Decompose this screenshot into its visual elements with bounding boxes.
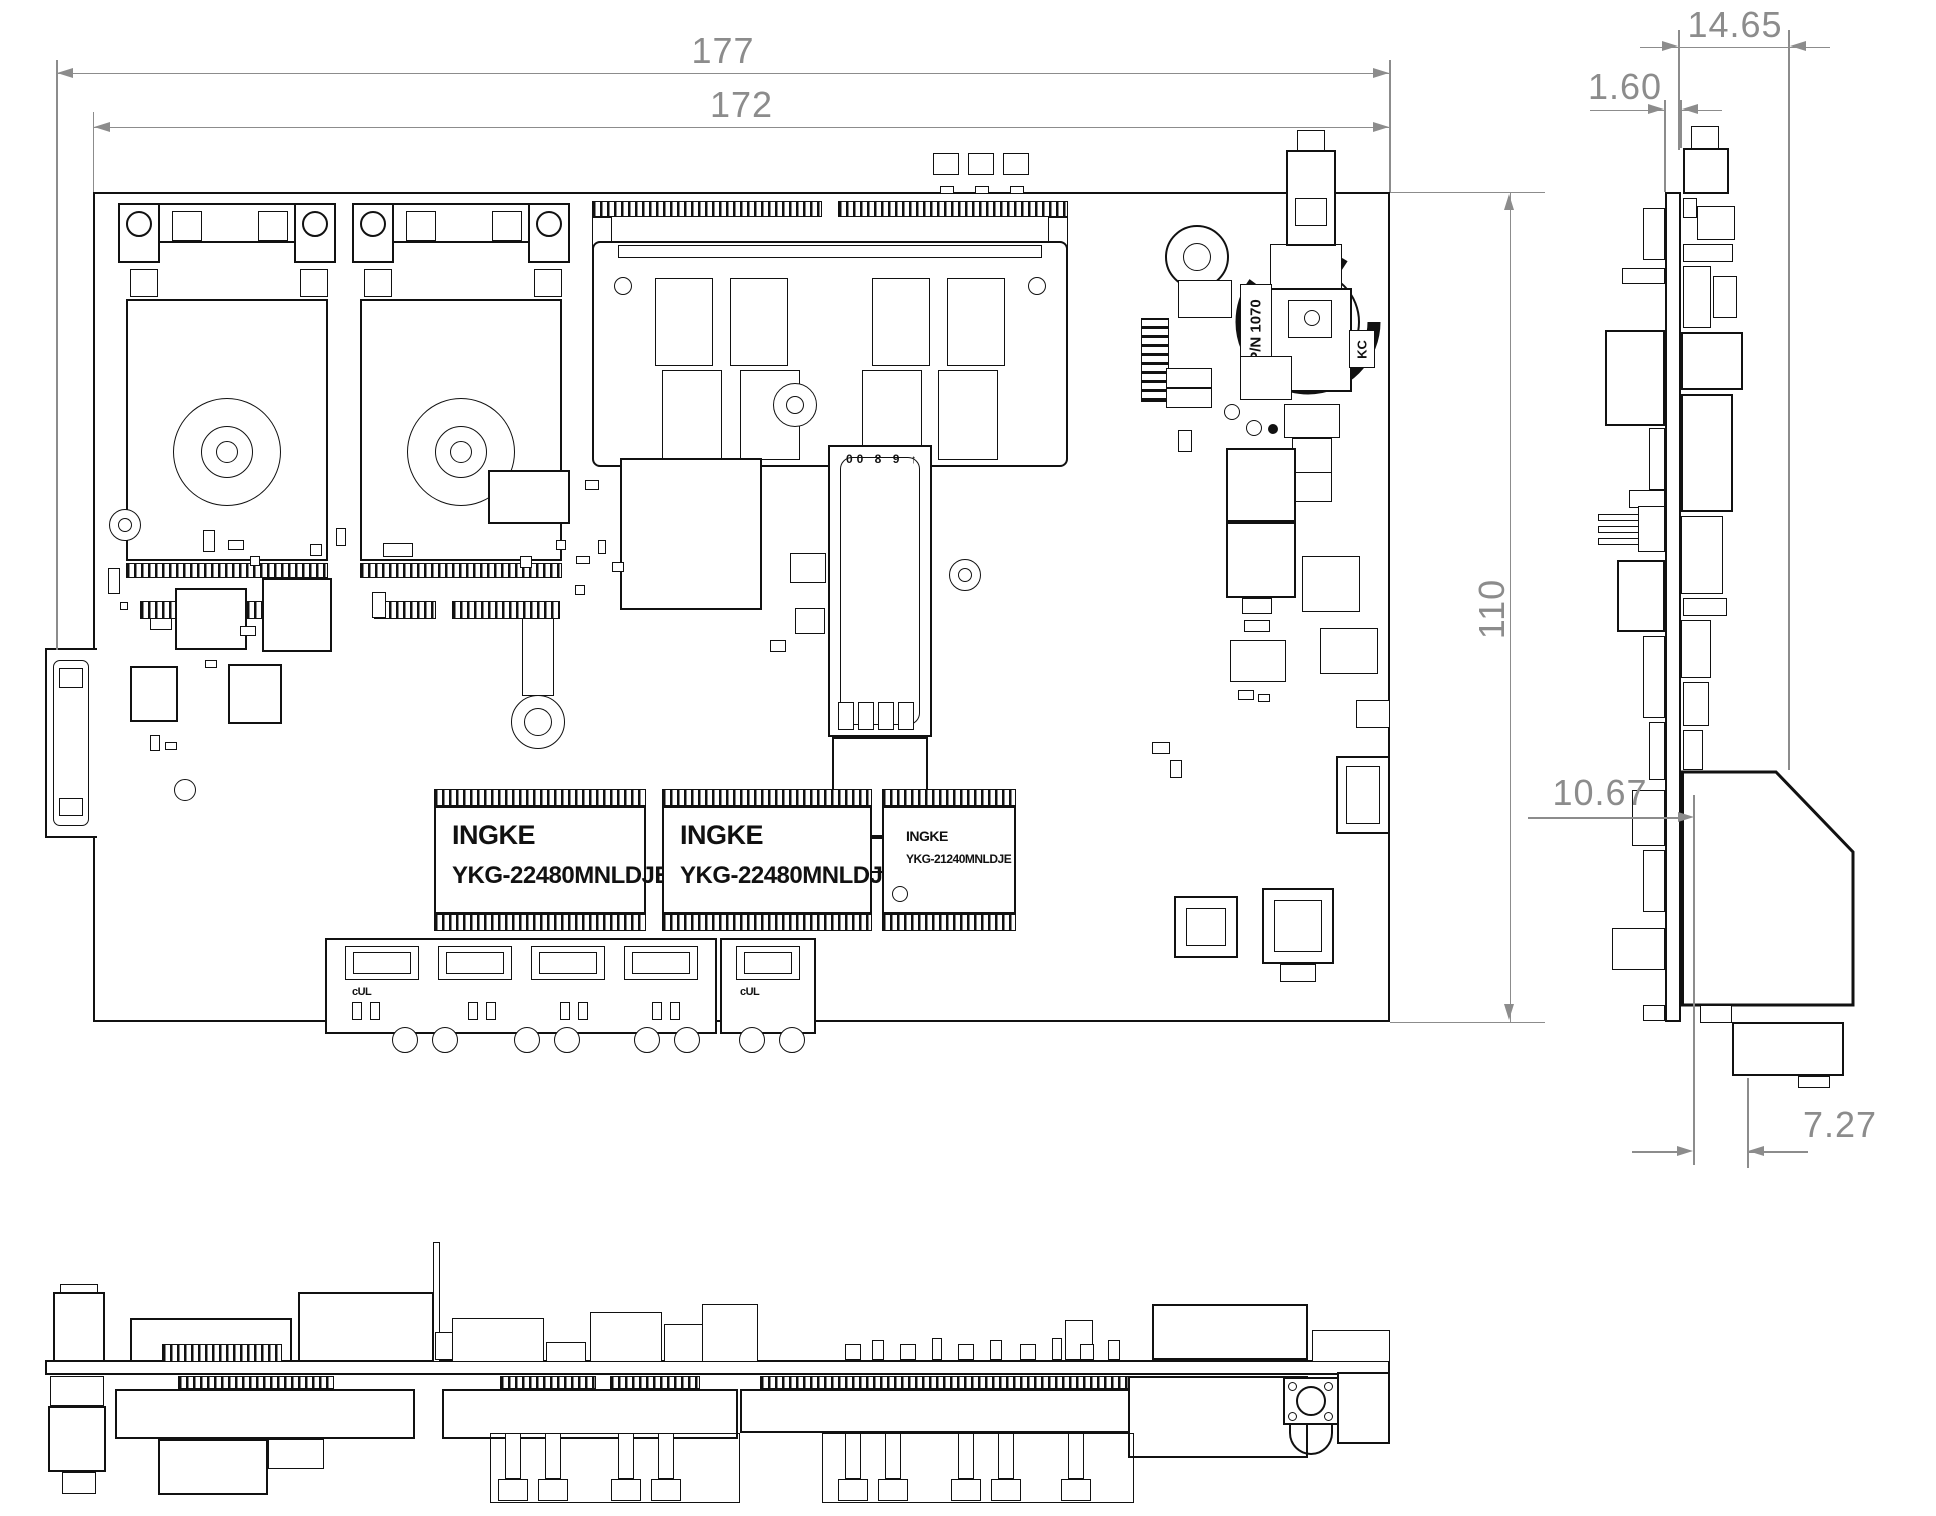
leg-foot [498,1479,528,1501]
audio-jack-side [1683,148,1729,194]
sodimm-pins [592,201,822,217]
component [205,660,217,668]
rj45-bay-inner [539,952,597,974]
mount-hole-core [958,568,972,582]
dim-label-172: 172 [93,84,1390,126]
sfp-latch [858,702,874,730]
component [1244,620,1270,632]
component [598,540,606,554]
component [268,1439,324,1469]
rf-ring-core [450,441,472,463]
leg [658,1433,674,1479]
pad [258,211,288,241]
component [228,664,282,724]
mini-connector-inner [1186,908,1226,946]
component [770,640,786,652]
leg [885,1433,901,1479]
dim-label-1465: 14.65 [1640,4,1830,46]
pin [370,1002,380,1020]
component [1108,1340,1120,1360]
pin [352,1002,362,1020]
battery-clip-foot [1292,438,1332,474]
component [1152,1304,1308,1360]
pin-row [434,789,646,806]
component [165,742,177,750]
screw-hole-icon [360,211,386,237]
pad [364,269,392,297]
component [1700,1005,1732,1023]
mount-foot [392,1027,418,1053]
component [203,530,215,552]
leg [958,1433,974,1479]
pin-row [434,914,646,931]
component [452,1318,544,1362]
connector-under [442,1389,738,1439]
component [958,1344,974,1360]
component [50,1376,104,1406]
component [1683,598,1727,616]
usb-inner [1346,766,1380,824]
ram-chip [872,278,930,366]
pin [578,1002,588,1020]
pin-row [162,1344,282,1362]
component [1798,1076,1830,1088]
component [310,544,322,556]
component [1649,428,1665,490]
arrow-icon [1504,1004,1514,1020]
dim-label-110: 110 [1471,549,1513,669]
mount-foot [432,1027,458,1053]
pin-row [126,563,328,578]
sfp-marking: 00 8 9 ↑ [846,452,921,466]
component [1683,682,1709,726]
rf-ring-core [216,441,238,463]
pin-row [662,789,872,806]
component [1010,186,1024,194]
ext-line [1693,795,1695,1165]
power-jack-pin [59,668,83,688]
arrow-icon [1504,194,1514,210]
sfp-cage-side [1681,770,1856,1008]
component [383,543,413,557]
component [1003,153,1029,175]
screw-icon [1324,1382,1333,1391]
ladder-connector [1141,318,1169,402]
component [53,1292,105,1362]
component [1643,850,1665,912]
ram-chip [655,278,713,366]
component [1356,700,1390,728]
pad [492,211,522,241]
leg [545,1433,561,1479]
ic-chip [175,588,247,650]
sodimm-side [1681,394,1733,512]
chip-part: YKG-22480MNLDJE [680,862,898,890]
component [1178,280,1232,318]
component [1683,730,1703,770]
component [1683,266,1711,328]
cert-mark: cUL [740,986,759,998]
pcb-edge-bar [45,1360,1390,1375]
component [1166,368,1212,388]
io-connector-inner [1274,900,1322,952]
audio-jack-hole [1296,1386,1326,1416]
ram-chip [730,278,788,366]
component [150,735,160,751]
power-module [1226,448,1296,522]
sfp-cage-inner [840,457,920,725]
pcb-cross-section [1665,192,1681,1022]
chip-brand: INGKE [452,820,535,851]
hole-icon [1224,404,1240,420]
rj45-bay-inner [353,952,411,974]
leg [505,1433,521,1479]
screw-hole-icon [302,211,328,237]
pad [406,211,436,241]
chip-brand: INGKE [680,820,763,851]
pin [486,1002,496,1020]
component [795,608,825,634]
component [108,568,120,594]
dim-label-1067: 10.67 [1520,772,1680,814]
mechanical-drawing: P/N 1070 KC [0,0,1936,1516]
power-jack-pin2 [59,798,83,816]
component [1605,330,1665,426]
component [933,153,959,175]
pin-row [882,789,1016,806]
arrow-icon [1748,1146,1764,1156]
leg-foot [538,1479,568,1501]
component [520,556,532,568]
pin [468,1002,478,1020]
component [298,1292,434,1362]
dim-label-160: 1.60 [1555,66,1695,108]
connector-under [158,1439,268,1495]
chip-part: YKG-22480MNLDJE [452,862,670,890]
component [228,540,244,550]
pin [670,1002,680,1020]
component [1258,694,1270,702]
mount-hole-core [786,396,804,414]
mount-hole-icon [174,779,196,801]
component [150,618,172,630]
component [1080,1344,1094,1360]
component [250,556,260,566]
component [1683,244,1733,262]
component [872,1340,884,1360]
component [1166,388,1212,408]
component [585,480,599,490]
ext-line [1788,30,1790,770]
component [968,153,994,175]
mount-foot [779,1027,805,1053]
pin-row [178,1376,334,1389]
leg [618,1433,634,1479]
component [1320,628,1378,674]
power-module [1226,522,1296,598]
battery-cert-label: KC [1355,333,1370,367]
leg-foot [991,1479,1021,1501]
component [1052,1338,1062,1360]
mount-hole-core [1183,243,1211,271]
ext-line [1664,100,1666,192]
pad [534,269,562,297]
component [1020,1344,1036,1360]
chip-brand: INGKE [906,828,948,844]
pin-row [610,1376,700,1389]
screw-icon [1324,1412,1333,1421]
pad [172,211,202,241]
cert-mark: cUL [352,986,371,998]
component [522,618,554,696]
leg-foot [1061,1479,1091,1501]
component [1302,556,1360,612]
mount-foot [634,1027,660,1053]
leg-foot [951,1479,981,1501]
screw-hole-icon [126,211,152,237]
component [372,592,386,618]
dim-label-177: 177 [56,30,1390,72]
leg-foot [878,1479,908,1501]
component [1178,430,1192,452]
audio-jack-side-nub [1691,126,1719,150]
sodimm-bar [618,245,1042,258]
mount-foot [554,1027,580,1053]
ic-chip [488,470,570,524]
component [1622,268,1665,284]
component [612,562,624,572]
pin-row [760,1376,1150,1389]
ext-line [56,60,58,650]
leg [1068,1433,1084,1479]
component [1280,964,1316,982]
cpu-chip [620,458,762,610]
pin [560,1002,570,1020]
latch-side [1612,928,1665,970]
component [932,1338,942,1360]
component [990,1340,1002,1360]
component [1681,620,1711,678]
leg [998,1433,1014,1479]
component [240,626,256,636]
dim-line-1067 [1528,817,1680,819]
component [556,540,566,550]
sfp-latch [878,702,894,730]
component [62,1472,96,1494]
dim-line-727 [1632,1151,1678,1153]
component [1238,690,1254,700]
component [1152,742,1170,754]
mount-foot [739,1027,765,1053]
mount-foot [514,1027,540,1053]
connector-under [1128,1376,1308,1458]
audio-jack-inner [1295,198,1327,226]
dim-line-177 [56,73,1390,75]
component [1713,276,1737,318]
component [900,1344,916,1360]
arrow-icon [1678,812,1694,822]
pad [300,269,328,297]
hole-icon [614,277,632,295]
ram-chip [938,370,998,460]
screw-icon [1288,1382,1297,1391]
component [1617,560,1665,632]
pin-row [882,914,1016,931]
arrow-icon [1677,1146,1693,1156]
leg-foot [611,1479,641,1501]
pin-row [500,1376,596,1389]
component [845,1344,861,1360]
component [1643,636,1665,718]
component [575,585,585,595]
connector-under [115,1389,415,1439]
sodimm-pins [838,201,1068,217]
component [576,556,590,564]
audio-jack-nub [1297,130,1325,152]
battery-clip-top [1270,244,1342,290]
mount-hole-core [118,518,132,532]
pad [130,269,158,297]
component [1230,640,1286,682]
component [702,1304,758,1362]
component [590,1312,662,1362]
leg-foot [838,1479,868,1501]
mount-foot [674,1027,700,1053]
component [130,666,178,722]
component [1643,1005,1665,1021]
component [1697,206,1735,240]
sfp-overhang [1732,1022,1844,1076]
rj45-bay-inner [446,952,504,974]
ext-line [1747,1078,1749,1168]
sfp-latch [898,702,914,730]
component [1240,356,1292,400]
hole-icon [1246,420,1262,436]
component [1643,208,1665,260]
sfp-latch [838,702,854,730]
screw-icon [1288,1412,1297,1421]
chip-part: YKG-21240MNLDJE [906,852,1011,866]
pin [652,1002,662,1020]
component [1638,506,1665,552]
component [1683,198,1697,218]
component [790,553,826,583]
hole-icon [1304,310,1320,326]
component [1337,1372,1390,1444]
hole-icon [1028,277,1046,295]
inductor-core [524,708,552,736]
rj45-bay-inner [632,952,690,974]
dim-label-727: 7.27 [1770,1104,1910,1146]
test-point [1268,424,1278,434]
battery-clip-bottom [1284,404,1340,438]
dim-line-172 [93,127,1390,129]
leg-foot [651,1479,681,1501]
component [546,1342,586,1362]
component [1312,1330,1390,1362]
pin-row [662,914,872,931]
screw-hole-icon [536,211,562,237]
leg [845,1433,861,1479]
component [975,186,989,194]
edge-fingers [452,601,560,619]
ram-chip [947,278,1005,366]
component [1681,516,1723,594]
component [1170,760,1182,778]
component [336,528,346,546]
ext-line [1390,192,1545,194]
ext-line [1390,1022,1545,1024]
component [1681,332,1743,390]
ram-chip [662,370,722,460]
ic-chip [262,578,332,652]
component [48,1406,106,1472]
component [1242,598,1272,614]
pin1-dot [892,886,908,902]
component [940,186,954,194]
component [120,602,128,610]
rj45-bay-inner [744,952,792,974]
